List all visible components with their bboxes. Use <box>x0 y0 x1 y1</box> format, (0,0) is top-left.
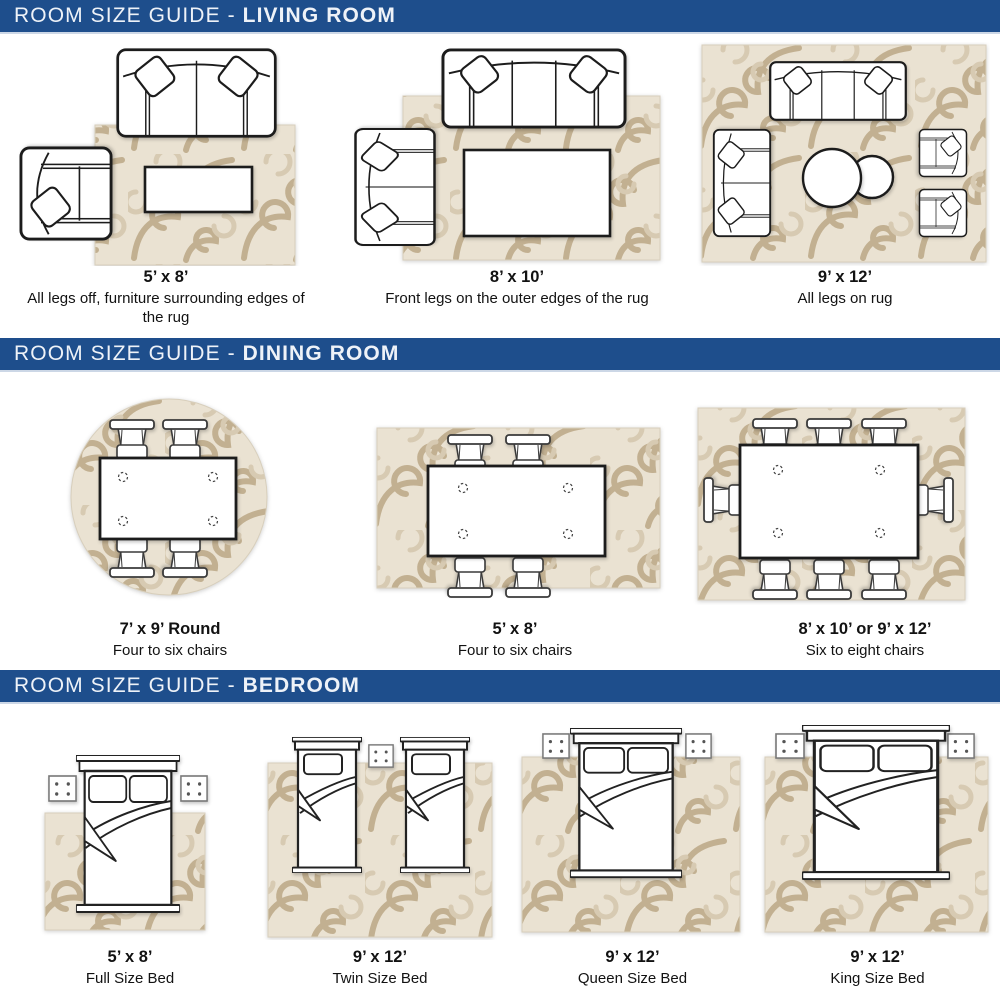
coffee-table-icon <box>464 150 610 236</box>
dining-table-icon <box>428 466 605 556</box>
armchair-icon <box>920 190 967 237</box>
header-prefix: ROOM SIZE GUIDE - <box>14 342 243 366</box>
bedroom-9x12-king-diagram <box>755 725 1000 940</box>
rug-placement-description: All legs off, furniture surrounding edge… <box>16 290 316 328</box>
rug-size-label: 9’ x 12’ <box>755 948 1000 967</box>
rug-size-label: 7’ x 9’ Round <box>40 620 300 639</box>
rug-size-label: 8’ x 10’ <box>357 268 677 287</box>
rug-size-label: 5’ x 8’ <box>385 620 645 639</box>
nightstand-icon <box>181 776 207 801</box>
bedroom-9x12-twin-diagram <box>255 725 505 940</box>
rug-placement-description: Front legs on the outer edges of the rug <box>357 290 677 309</box>
dining-room-7x9-round-diagram <box>55 395 285 605</box>
caption-bedroom-queen: 9’ x 12’ Queen Size Bed <box>510 948 755 989</box>
nightstand-icon <box>948 734 974 758</box>
bed-icon <box>76 755 180 912</box>
rug-placement-description: Six to eight chairs <box>735 642 995 661</box>
caption-living-9x12: 9’ x 12’ All legs on rug <box>700 268 990 309</box>
caption-bedroom-twin: 9’ x 12’ Twin Size Bed <box>255 948 505 989</box>
nightstand-icon <box>686 734 711 758</box>
caption-bedroom-king: 9’ x 12’ King Size Bed <box>755 948 1000 989</box>
header-bedroom: ROOM SIZE GUIDE - BEDROOM <box>0 670 1000 704</box>
nightstand-icon <box>369 745 393 767</box>
round-table-large-icon <box>803 149 861 207</box>
rug-size-label: 5’ x 8’ <box>16 268 316 287</box>
rug-placement-description: Full Size Bed <box>30 970 230 989</box>
bedroom-9x12-queen-diagram <box>510 725 755 940</box>
rug-size-label: 5’ x 8’ <box>30 948 230 967</box>
header-prefix: ROOM SIZE GUIDE - <box>14 674 243 698</box>
armchair-icon <box>21 148 111 239</box>
rug-size-label: 8’ x 10’ or 9’ x 12’ <box>735 620 995 639</box>
armchair-icon <box>920 130 967 177</box>
loveseat-icon <box>356 129 435 245</box>
bed-icon <box>802 725 950 879</box>
coffee-table-icon <box>145 167 252 212</box>
living-room-8x10-diagram <box>340 44 670 266</box>
rug-placement-description: Twin Size Bed <box>255 970 505 989</box>
header-dining-room: ROOM SIZE GUIDE - DINING ROOM <box>0 338 1000 372</box>
nightstand-icon <box>49 776 76 801</box>
rug-size-label: 9’ x 12’ <box>510 948 755 967</box>
caption-living-8x10: 8’ x 10’ Front legs on the outer edges o… <box>357 268 677 309</box>
bed-icon <box>570 728 682 877</box>
header-room-name: DINING ROOM <box>243 342 400 366</box>
sofa-icon <box>770 62 906 120</box>
living-room-9x12-diagram <box>695 42 990 266</box>
bed-icon <box>292 737 362 873</box>
rug-size-label: 9’ x 12’ <box>700 268 990 287</box>
header-room-name: LIVING ROOM <box>243 4 396 28</box>
caption-dining-5x8: 5’ x 8’ Four to six chairs <box>385 620 645 661</box>
header-prefix: ROOM SIZE GUIDE - <box>14 4 243 28</box>
living-room-5x8-diagram <box>18 44 320 266</box>
dining-room-8x10-diagram <box>692 400 972 605</box>
bedroom-5x8-full-diagram <box>30 725 230 940</box>
dining-room-5x8-diagram <box>370 420 665 605</box>
rug-placement-description: Four to six chairs <box>385 642 645 661</box>
rug-placement-description: All legs on rug <box>700 290 990 309</box>
sofa-icon <box>443 50 625 127</box>
nightstand-icon <box>776 734 804 758</box>
caption-living-5x8: 5’ x 8’ All legs off, furniture surround… <box>16 268 316 328</box>
bed-icon <box>400 737 470 873</box>
sofa-icon <box>118 50 276 136</box>
caption-bedroom-full: 5’ x 8’ Full Size Bed <box>30 948 230 989</box>
caption-dining-7x9: 7’ x 9’ Round Four to six chairs <box>40 620 300 661</box>
header-living-room: ROOM SIZE GUIDE - LIVING ROOM <box>0 0 1000 34</box>
rug-placement-description: Four to six chairs <box>40 642 300 661</box>
caption-dining-8x10-9x12: 8’ x 10’ or 9’ x 12’ Six to eight chairs <box>735 620 995 661</box>
header-room-name: BEDROOM <box>243 674 360 698</box>
rug-placement-description: Queen Size Bed <box>510 970 755 989</box>
loveseat-icon <box>714 130 770 236</box>
rug-placement-description: King Size Bed <box>755 970 1000 989</box>
nightstand-icon <box>543 734 569 758</box>
dining-table-icon <box>100 458 236 539</box>
rug-size-label: 9’ x 12’ <box>255 948 505 967</box>
dining-table-icon <box>740 445 918 558</box>
